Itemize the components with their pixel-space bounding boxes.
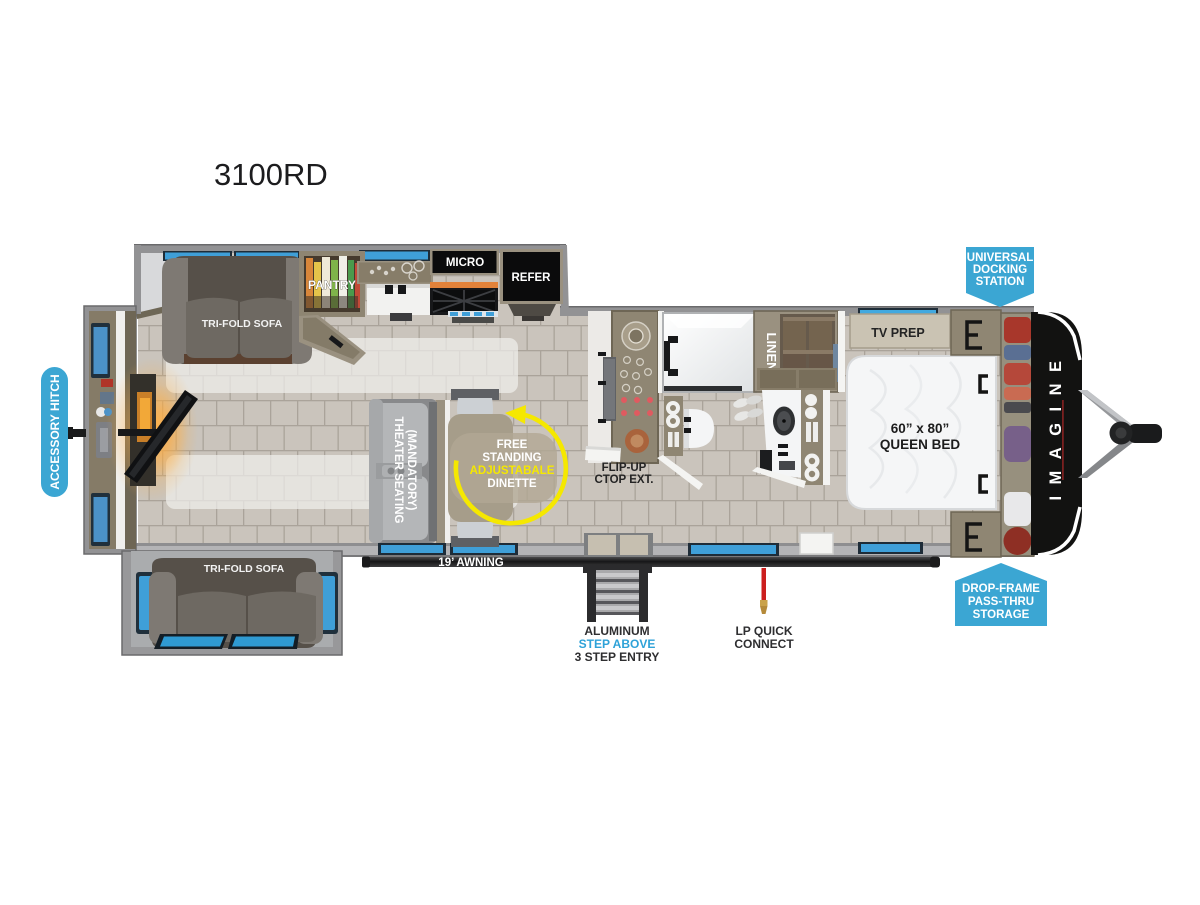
svg-text:PASS-THRU: PASS-THRU <box>968 596 1034 608</box>
svg-text:FREE: FREE <box>497 439 528 451</box>
svg-text:19’ AWNING: 19’ AWNING <box>438 557 503 569</box>
svg-text:LP QUICK: LP QUICK <box>735 624 792 638</box>
svg-text:STATION: STATION <box>976 276 1025 288</box>
svg-text:TV PREP: TV PREP <box>871 326 925 340</box>
svg-text:ADJUSTABALE: ADJUSTABALE <box>470 465 555 477</box>
svg-text:DROP-FRAME: DROP-FRAME <box>962 583 1040 595</box>
svg-text:ACCESSORY HITCH: ACCESSORY HITCH <box>48 374 62 489</box>
svg-text:ALUMINUM: ALUMINUM <box>584 624 649 638</box>
svg-text:UNIVERSAL: UNIVERSAL <box>967 252 1033 264</box>
svg-text:DINETTE: DINETTE <box>487 478 537 490</box>
svg-text:TRI-FOLD SOFA: TRI-FOLD SOFA <box>202 318 283 330</box>
svg-text:THEATER SEATING: THEATER SEATING <box>392 417 404 524</box>
svg-text:DOCKING: DOCKING <box>973 264 1027 276</box>
svg-text:3 STEP ENTRY: 3 STEP ENTRY <box>575 650 660 664</box>
svg-text:CTOP EXT.: CTOP EXT. <box>594 474 653 486</box>
svg-text:3100RD: 3100RD <box>214 157 328 192</box>
svg-text:REFER: REFER <box>512 272 552 284</box>
svg-text:QUEEN BED: QUEEN BED <box>880 437 961 452</box>
svg-text:(MANDATORY): (MANDATORY) <box>405 430 417 511</box>
svg-text:STEP ABOVE: STEP ABOVE <box>579 637 656 651</box>
svg-text:TRI-FOLD SOFA: TRI-FOLD SOFA <box>204 563 285 575</box>
svg-text:CONNECT: CONNECT <box>734 637 794 651</box>
svg-text:PANTRY: PANTRY <box>308 278 356 292</box>
svg-text:MICRO: MICRO <box>446 257 484 269</box>
svg-text:STORAGE: STORAGE <box>973 609 1030 621</box>
svg-text:FLIP-UP: FLIP-UP <box>602 462 647 474</box>
svg-text:60” x 80”: 60” x 80” <box>891 421 950 436</box>
svg-text:LINEN: LINEN <box>764 333 779 372</box>
svg-text:IMAGINE: IMAGINE <box>1047 349 1065 500</box>
svg-text:STANDING: STANDING <box>482 452 541 464</box>
